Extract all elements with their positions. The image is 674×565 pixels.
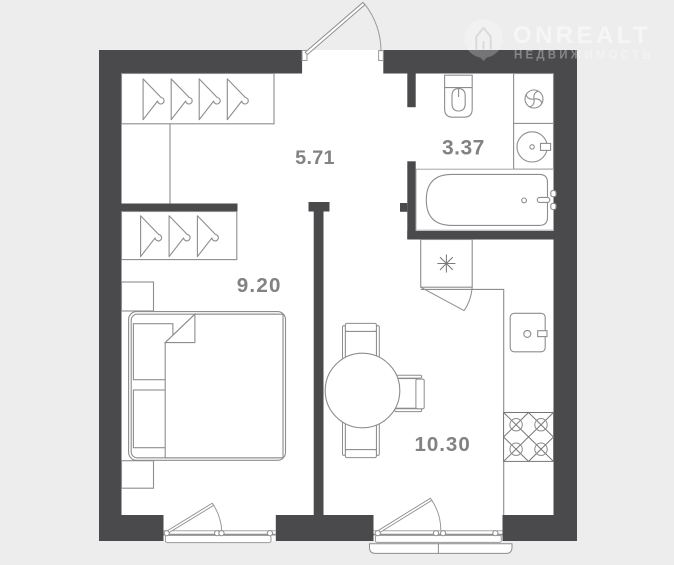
svg-text:ONREALT: ONREALT: [513, 22, 651, 49]
svg-text:5.71: 5.71: [295, 147, 335, 169]
svg-text:3.37: 3.37: [442, 137, 485, 160]
svg-text:9.20: 9.20: [237, 274, 282, 297]
svg-text:НЕДВИЖИМОСТЬ: НЕДВИЖИМОСТЬ: [514, 49, 654, 61]
svg-text:10.30: 10.30: [414, 433, 470, 456]
